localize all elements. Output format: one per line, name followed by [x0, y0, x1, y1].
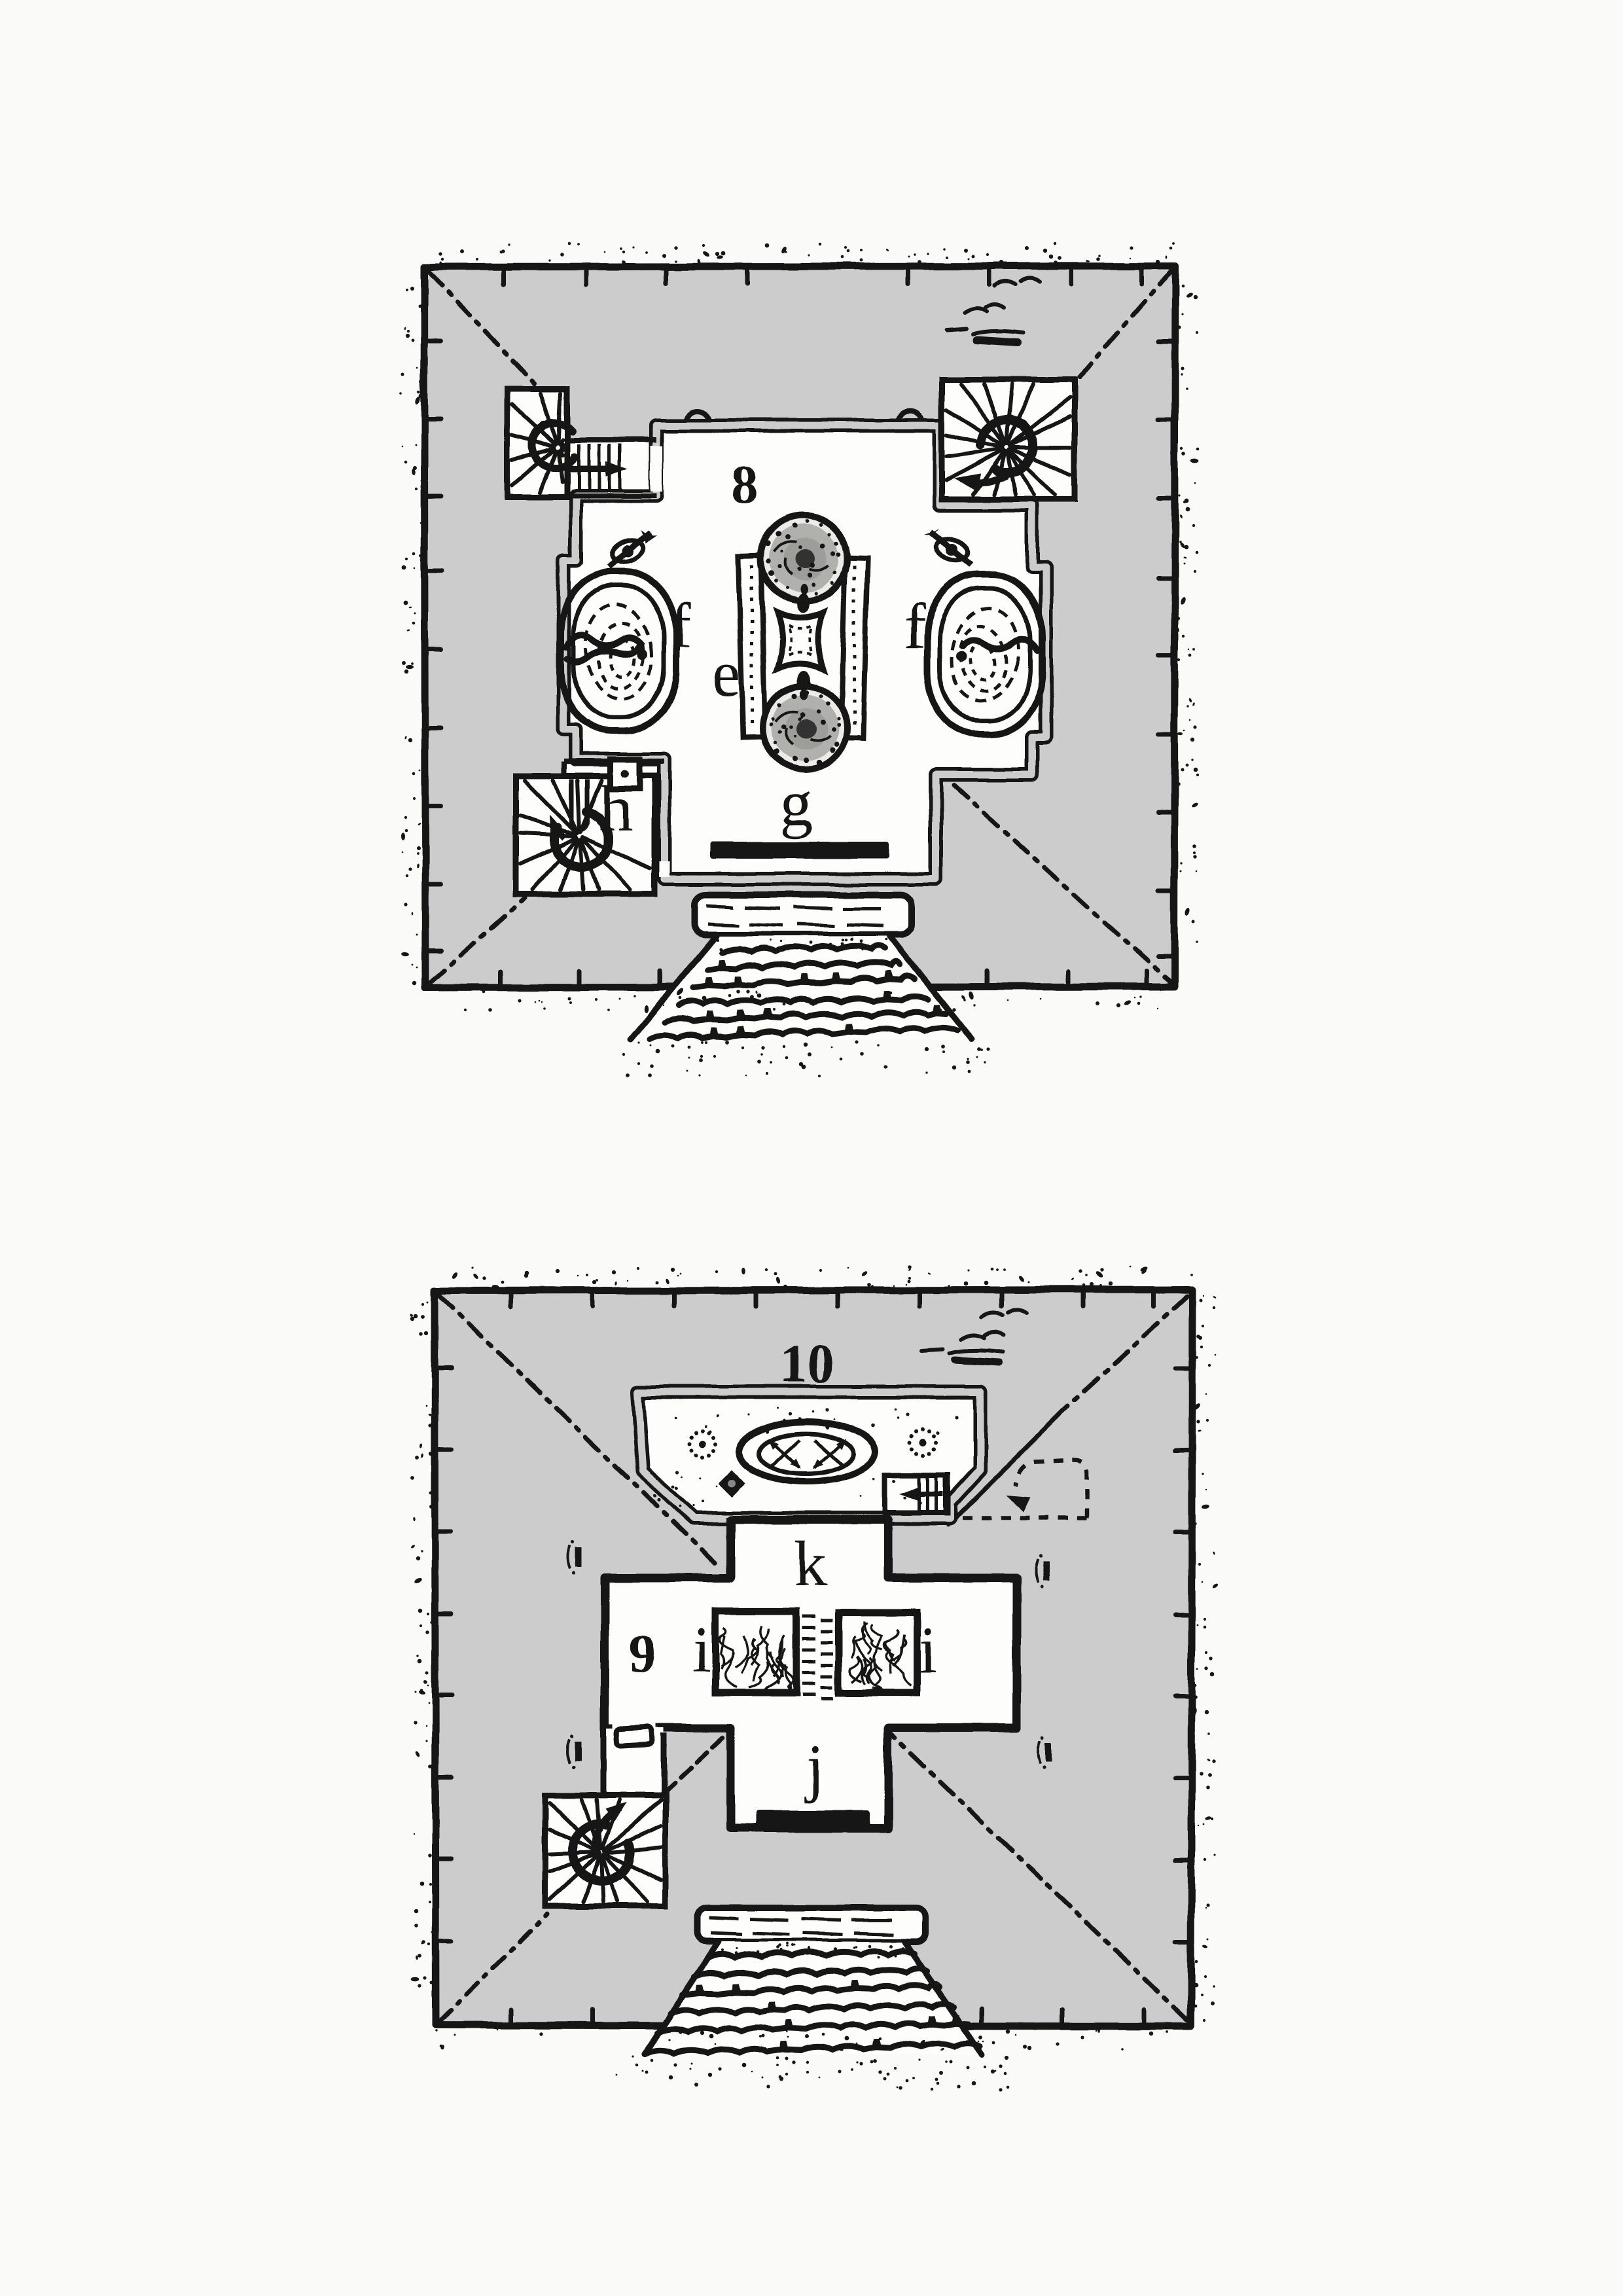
svg-text:f: f	[669, 588, 692, 661]
svg-text:f: f	[904, 590, 926, 662]
svg-text:9: 9	[629, 1623, 656, 1684]
svg-text:i: i	[692, 1613, 711, 1686]
svg-text:e: e	[712, 638, 741, 711]
svg-text:i: i	[919, 1613, 937, 1686]
svg-text:g: g	[780, 766, 813, 839]
svg-text:8: 8	[730, 454, 758, 515]
svg-text:k: k	[794, 1527, 827, 1600]
svg-text:10: 10	[779, 1334, 834, 1395]
svg-text:h: h	[599, 772, 632, 844]
svg-text:j: j	[804, 1731, 825, 1804]
